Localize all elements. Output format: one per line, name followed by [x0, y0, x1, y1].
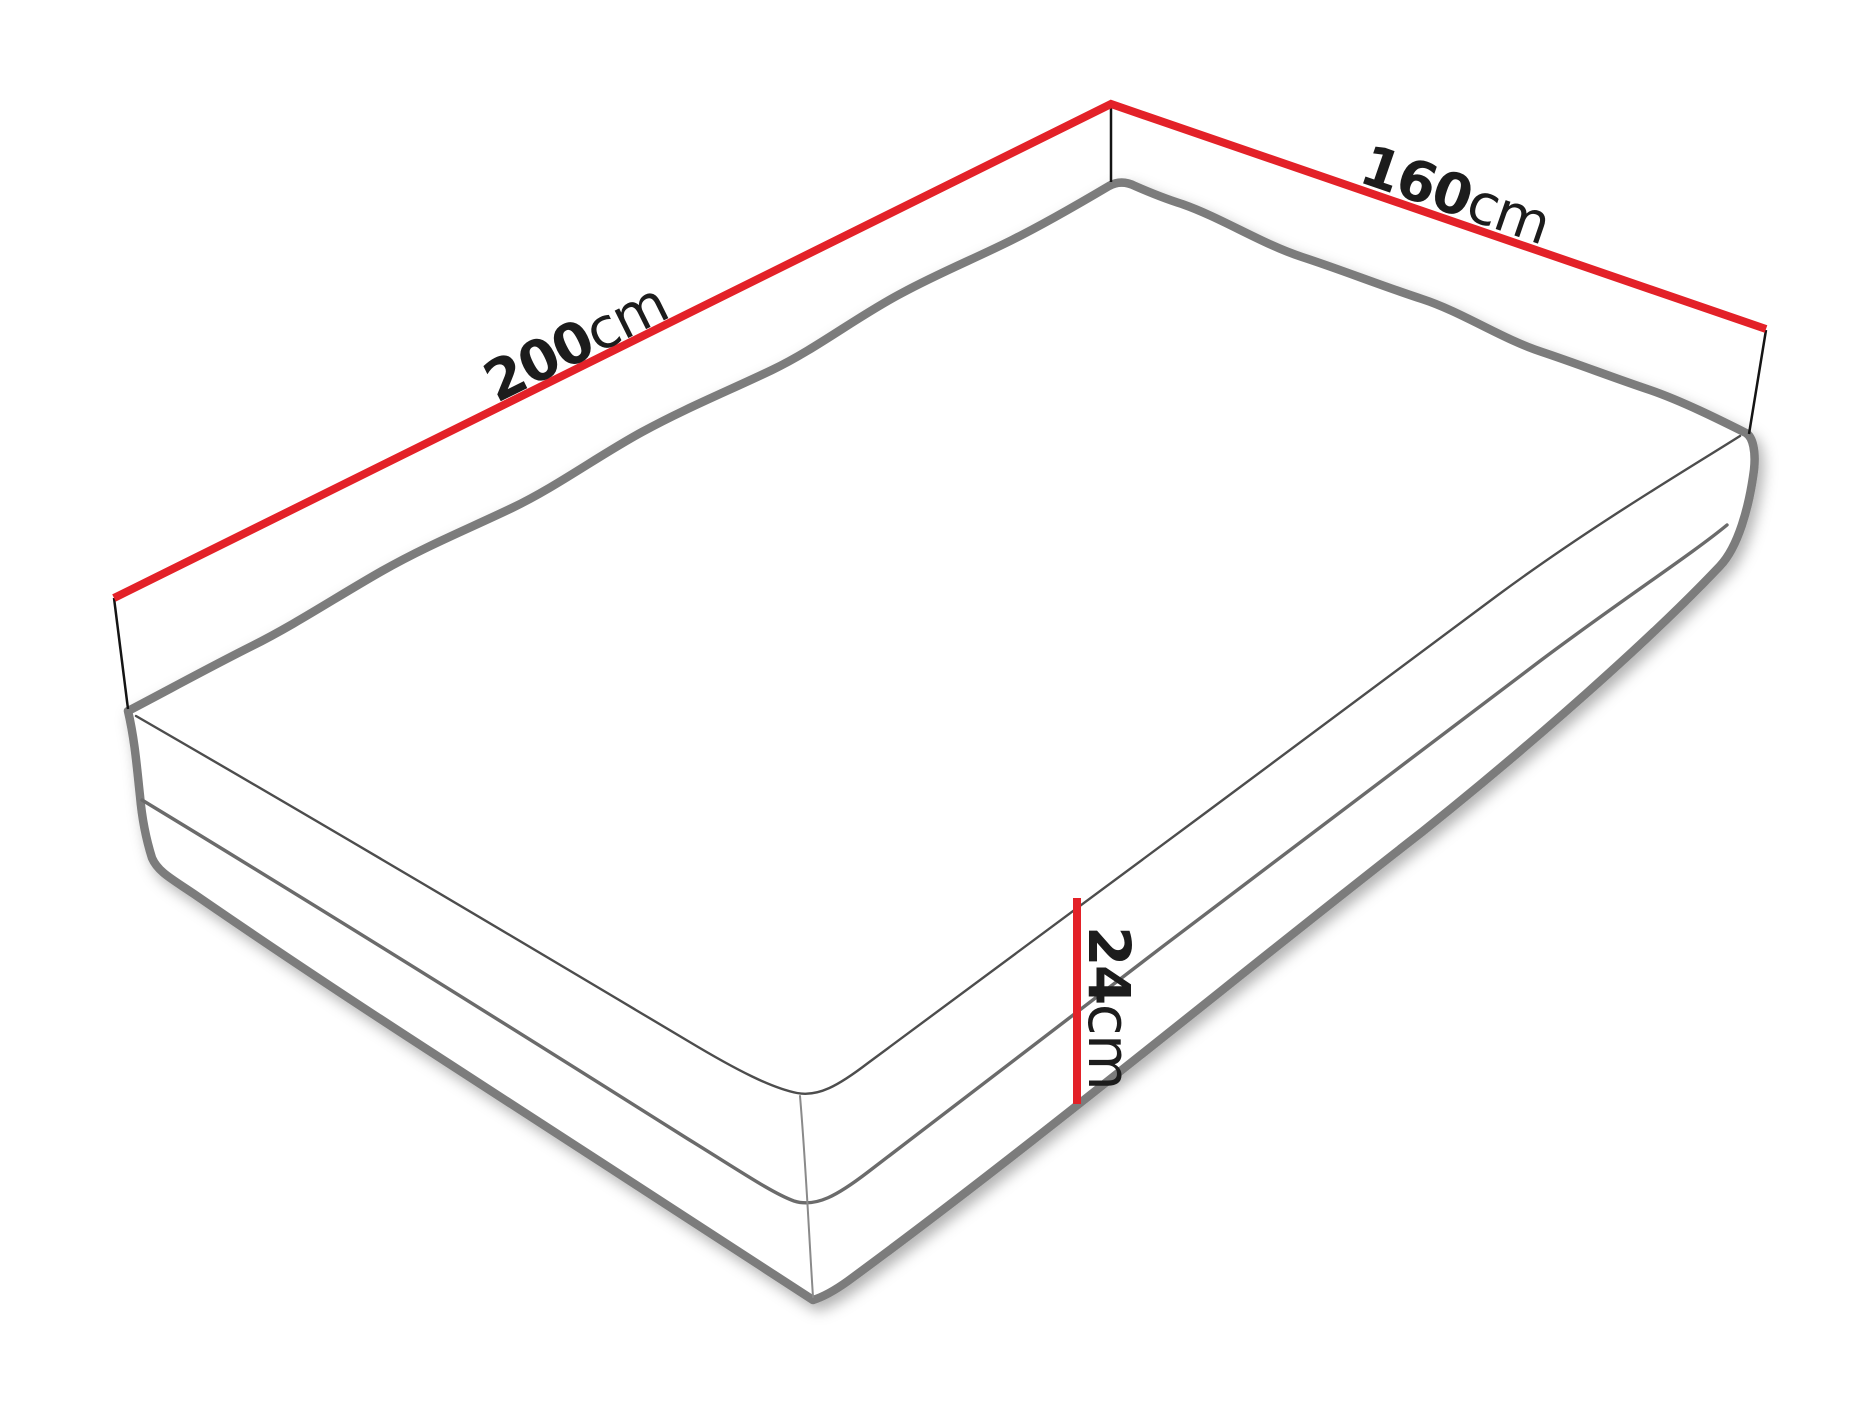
height-unit: cm — [1075, 1004, 1143, 1089]
height-value: 24 — [1075, 926, 1143, 1004]
width-tick-line — [1749, 330, 1766, 434]
mattress-silhouette — [128, 183, 1755, 1300]
length-tick-line — [114, 598, 128, 709]
height-label: 24cm — [1075, 926, 1143, 1089]
mattress — [128, 183, 1755, 1300]
width-label: 160cm — [1352, 133, 1557, 258]
mattress-dimension-diagram: 200cm 160cm 24cm — [0, 0, 1868, 1401]
length-label: 200cm — [474, 271, 677, 416]
diagram-canvas: 200cm 160cm 24cm — [0, 0, 1868, 1401]
width-value: 160 — [1352, 133, 1479, 231]
